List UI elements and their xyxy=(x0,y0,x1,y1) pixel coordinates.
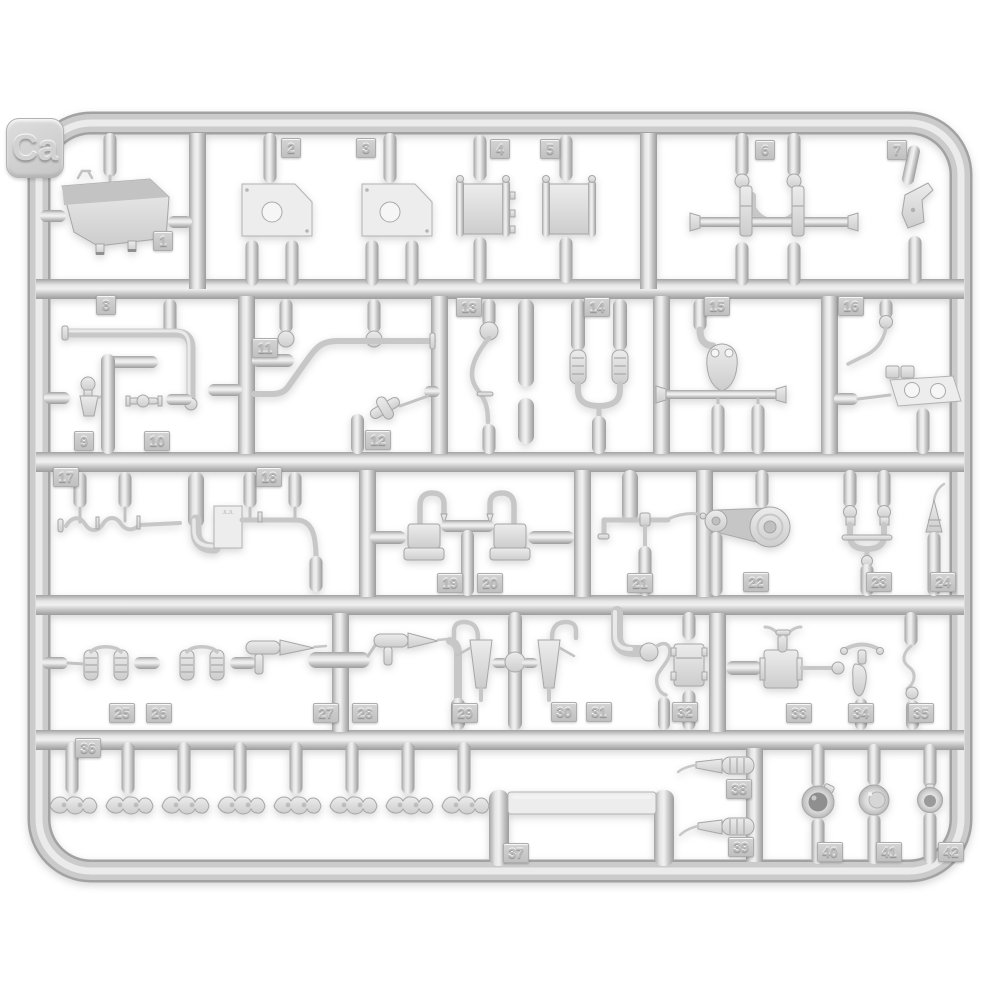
part-number-tab-41: 41 xyxy=(876,842,902,862)
part-number-tab-40: 40 xyxy=(817,842,843,862)
part-number-tab-8: 8 xyxy=(96,295,116,315)
part-number-tab-33: 33 xyxy=(786,703,812,723)
part-number-tab-37: 37 xyxy=(503,843,529,863)
sprue-label: Ca xyxy=(6,118,64,178)
part-number-tab-27: 27 xyxy=(313,703,339,723)
part-2-bracket-plate xyxy=(242,133,312,286)
part-number-tab-24: 24 xyxy=(930,572,956,592)
molded-marking: JLJL xyxy=(222,510,234,516)
part-number-tab-18: 18 xyxy=(256,467,282,487)
part-number-tab-12: 12 xyxy=(365,430,391,450)
part-15-y-manifold xyxy=(656,299,786,454)
part-number-tab-1: 1 xyxy=(153,231,173,251)
part-number-tab-19: 19 xyxy=(437,573,463,593)
part-31-elbow-hose xyxy=(615,612,670,730)
part-11-s-pipe xyxy=(252,299,435,394)
part-number-tab-2: 2 xyxy=(281,138,301,158)
part-number-tab-14: 14 xyxy=(584,297,610,317)
part-14-u-hose-with-filters xyxy=(570,299,628,454)
part-number-tab-26: 26 xyxy=(146,703,172,723)
part-number-tab-42: 42 xyxy=(938,842,964,862)
part-number-tab-28: 28 xyxy=(352,703,378,723)
sprue-photo: JLJL xyxy=(0,0,1000,1000)
part-19-pump xyxy=(370,493,447,560)
part-38-nozzle-cone xyxy=(678,757,754,774)
part-number-tab-30: 30 xyxy=(551,702,577,722)
part-39-nozzle-cone xyxy=(680,818,754,835)
part-number-tab-11: 11 xyxy=(252,338,278,358)
part-26-grip-handle xyxy=(134,647,256,680)
part-number-tab-29: 29 xyxy=(452,703,478,723)
part-number-tab-3: 3 xyxy=(356,138,376,158)
part-number-tab-38: 38 xyxy=(726,779,752,799)
part-number-tab-13: 13 xyxy=(456,297,482,317)
part-7-bracket xyxy=(901,144,933,284)
part-29-oiler-funnel xyxy=(454,622,508,700)
part-36-link-set xyxy=(50,742,489,814)
part-13-curved-pipe xyxy=(472,299,534,454)
part-number-tab-22: 22 xyxy=(743,572,769,592)
part-number-tab-23: 23 xyxy=(866,572,892,592)
part-9-valve xyxy=(44,377,106,416)
part-number-tab-9: 9 xyxy=(74,431,94,451)
part-number-tab-7: 7 xyxy=(887,140,907,160)
part-number-tab-31: 31 xyxy=(586,702,612,722)
part-number-tab-20: 20 xyxy=(477,573,503,593)
part-number-tab-4: 4 xyxy=(490,139,510,159)
part-number-tab-32: 32 xyxy=(672,702,698,722)
part-number-tab-35: 35 xyxy=(908,703,934,723)
sprue-runner-rails xyxy=(36,133,964,862)
part-16-bracket-assembly xyxy=(834,299,961,454)
part-number-tab-39: 39 xyxy=(728,837,754,857)
part-number-tab-34: 34 xyxy=(848,703,874,723)
part-number-tab-5: 5 xyxy=(540,139,560,159)
part-25-grip-handle xyxy=(42,647,128,680)
part-number-tab-6: 6 xyxy=(755,140,775,160)
part-18-plate-with-pipe: JLJL xyxy=(188,472,323,592)
part-number-tab-15: 15 xyxy=(704,296,730,316)
part-number-tab-25: 25 xyxy=(109,703,135,723)
part-number-tab-17: 17 xyxy=(53,467,79,487)
part-33-carburetor xyxy=(726,627,844,688)
part-number-tab-21: 21 xyxy=(627,573,653,593)
part-number-tab-36: 36 xyxy=(75,738,101,758)
part-number-tab-16: 16 xyxy=(838,296,864,316)
part-number-tab-10: 10 xyxy=(144,431,170,451)
